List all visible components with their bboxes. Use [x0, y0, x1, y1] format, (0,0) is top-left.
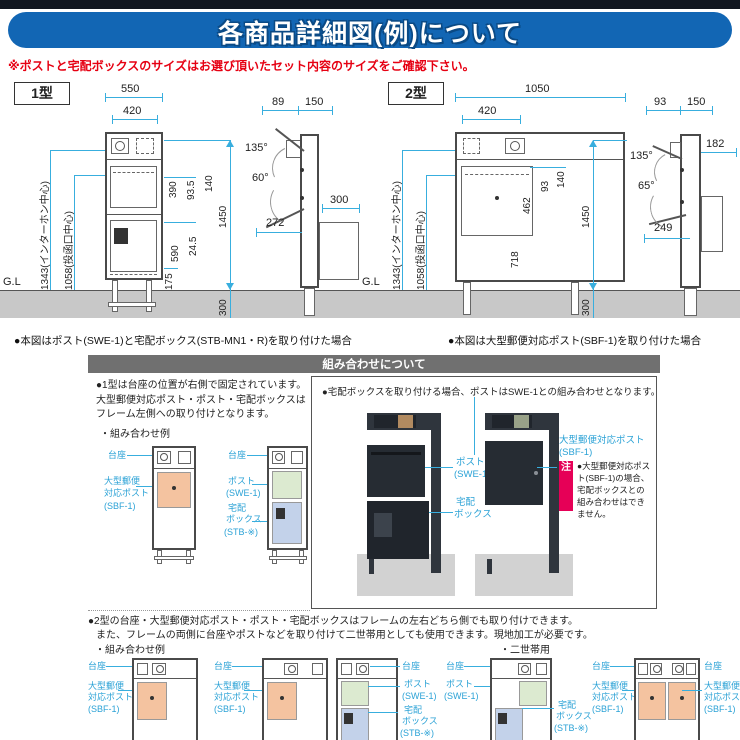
intercom-speaker-icon: [510, 141, 520, 151]
dim-tick: [262, 106, 263, 115]
label-leader: [370, 666, 400, 667]
photo2-pillar: [549, 413, 559, 573]
dim-leader: [402, 150, 455, 151]
takuhai-label-1: 宅配: [558, 700, 576, 711]
photo1-post-slot: [371, 452, 421, 455]
ohgata-label-2: 対応ポスト: [104, 488, 149, 499]
bottom-example-label: ・組み合わせ例: [95, 644, 165, 659]
dim-1450: 1450: [218, 206, 229, 228]
daiza-label: 台座: [402, 661, 420, 672]
dim-tick: [298, 106, 299, 115]
takuhai-label-1: 宅配: [404, 705, 422, 716]
dim-line: [644, 238, 690, 239]
page-title: 各商品詳細図(例)について: [218, 14, 522, 50]
dim-tick: [680, 106, 681, 115]
intercom-speaker-icon: [275, 453, 283, 461]
stand-foot: [154, 556, 194, 560]
dim-140: 140: [204, 175, 215, 192]
photo1-intercom-module: [398, 415, 413, 428]
takuhai-label-2: ボックス: [402, 716, 438, 727]
bottom-note-line2: また、フレームの両側に台座やポストなどを取り付けて二世帯用としても使用できます。…: [96, 629, 593, 644]
dim-line: [262, 110, 298, 111]
dim-leader: [426, 175, 455, 176]
type1-front-frame: [105, 132, 163, 280]
dim-249: 249: [654, 222, 672, 234]
photo2-intercom-module: [514, 415, 529, 428]
type2-badge: 2型: [388, 82, 444, 105]
dim-tick: [112, 115, 113, 124]
combo-note-text: ●大型郵便対応ポスト(SBF-1)の場合、宅配ボックスとの組み合わせはできません…: [577, 461, 653, 520]
dim-line: [322, 208, 359, 209]
lock-dot: [650, 696, 654, 700]
stb-label: (STB-※): [400, 728, 434, 739]
stand-leg: [146, 280, 152, 312]
swe-box: [341, 681, 369, 706]
dim-590: 590: [170, 245, 181, 262]
sbf-box: [267, 682, 297, 720]
frame-divider: [134, 678, 196, 679]
dim-leader: [164, 268, 178, 269]
lock-dot: [495, 196, 499, 200]
warning-text: ※ポストと宅配ボックスのサイズはお選び頂いたセット内容のサイズをご確認下さい。: [8, 57, 475, 74]
dim-tick: [646, 106, 647, 115]
swe-box: [272, 471, 302, 499]
ohgata-label-2: 対応ポスト: [704, 692, 740, 703]
dim-tick: [332, 106, 333, 115]
combo-right-note: ●宅配ボックスを取り付ける場合、ポストはSWE-1との組み合わせとなります。: [322, 384, 660, 398]
type1-badge: 1型: [14, 82, 70, 105]
dim-tick: [359, 204, 360, 213]
combo-diagram-a-frame: [152, 446, 196, 550]
daiza-label: 台座: [88, 661, 106, 672]
daiza-cell: [137, 663, 148, 675]
takuhai-label-1: 宅配: [228, 503, 246, 514]
dim-arrow: [589, 140, 597, 147]
bottom-dual-label: ・二世帯用: [500, 644, 550, 659]
type1-caption: ●本図はポスト(SWE-1)と宅配ボックス(STB-MN1・R)を取り付けた場合: [14, 333, 352, 348]
stand-leg: [571, 282, 579, 315]
dim-272: 272: [266, 217, 284, 229]
page: 各商品詳細図(例)について ※ポストと宅配ボックスのサイズはお選び頂いたセット内…: [0, 0, 740, 740]
dim-intercom-center: 1343(インターホン中心): [36, 181, 51, 290]
frame-divider: [264, 678, 326, 679]
dim-leader: [164, 140, 230, 141]
lock-dot: [280, 696, 284, 700]
angle-135: 135°: [245, 142, 268, 154]
side-leg: [684, 288, 697, 316]
dim-24-5: 24.5: [188, 237, 199, 256]
frame-divider: [636, 678, 698, 679]
label-leader: [522, 708, 554, 709]
takuhai-label-2: ボックス: [556, 711, 592, 722]
angle-65: 65°: [638, 180, 655, 192]
sbf-label: (SBF-1): [704, 704, 736, 715]
title-bar: 各商品詳細図(例)について: [8, 12, 732, 48]
gl-label-1: G.L: [3, 276, 21, 288]
swe-label: (SWE-1): [402, 691, 437, 702]
bottom-diagram4-frame: [490, 658, 552, 740]
dim-tick: [712, 106, 713, 115]
combo-header-bar: 組み合わせについて: [88, 355, 660, 373]
daiza-label: 台座: [592, 661, 610, 672]
type2-front-frame: [455, 132, 625, 282]
bottom-note-line1: ●2型の台座・大型郵便対応ポスト・ポスト・宅配ボックスはフレームの左右どちら側で…: [88, 615, 578, 630]
daiza-cell: [686, 663, 696, 675]
frame-dash: [110, 274, 157, 275]
dim-tick: [256, 228, 257, 237]
intercom-speaker-icon: [521, 665, 529, 673]
dim-1450-2: 1450: [581, 206, 592, 228]
keypad-icon: [344, 713, 353, 724]
dim-arrow: [226, 283, 234, 290]
sbf-box: [157, 472, 191, 508]
dim-arrow: [589, 283, 597, 290]
gl-label-2: G.L: [362, 276, 380, 288]
frame-divider: [107, 159, 161, 160]
ohgata-full-label: 大型郵便対応ポスト: [559, 435, 645, 447]
post-label: ポスト: [228, 476, 255, 487]
label-leader: [425, 467, 453, 468]
dim-175: 175: [164, 273, 175, 290]
takuhai-label-2: ボックス: [454, 509, 492, 521]
post-slot: [465, 174, 529, 175]
dim-arrow: [226, 140, 234, 147]
frame-divider: [457, 159, 623, 160]
dim-line: [105, 97, 163, 98]
dim-line: [680, 110, 712, 111]
dim-tick: [322, 204, 323, 213]
dim-tick: [625, 93, 626, 102]
frame-divider: [154, 468, 194, 469]
stb-label: (STB-※): [224, 527, 258, 538]
dim-150-side: 150: [687, 96, 705, 108]
bottom-diagram2-frame: [262, 658, 328, 740]
ohgata-label-2: 対応ポスト: [88, 692, 133, 703]
combo-example-label: ・組み合わせ例: [100, 428, 170, 443]
dim-300-depth: 300: [330, 194, 348, 206]
dim-line-300: [230, 290, 231, 318]
daiza-cell: [178, 451, 191, 464]
combo-header-title: 組み合わせについて: [322, 359, 425, 371]
dim-line: [455, 97, 625, 98]
dim-tick: [736, 148, 737, 157]
label-leader: [682, 690, 702, 691]
lock-dot: [150, 696, 154, 700]
dim-line-1450: [230, 140, 231, 290]
dim-tick: [520, 115, 521, 124]
swe-label: (SWE-1): [226, 488, 261, 499]
dim-line: [701, 152, 737, 153]
swe-label: (SWE-1): [444, 691, 479, 702]
lock-dot: [172, 486, 176, 490]
dim-550: 550: [121, 83, 139, 95]
sbf-label: (SBF-1): [88, 704, 120, 715]
dim-150: 150: [305, 96, 323, 108]
top-bar: [0, 0, 740, 9]
dim-390: 390: [168, 181, 179, 198]
frame-divider: [269, 468, 306, 469]
label-leader: [474, 397, 475, 455]
ground-line: [0, 290, 740, 291]
intercom-speaker-icon: [288, 665, 296, 673]
intercom-speaker-icon: [653, 665, 661, 673]
dim-tick: [644, 234, 645, 243]
combo-left-note: ●1型は台座の位置が右側で固定されています。大型郵便対応ポスト・ポスト・宅配ボッ…: [96, 379, 308, 423]
dim-leader: [50, 150, 105, 151]
daiza-cell: [638, 663, 648, 675]
swe-box: [519, 681, 547, 706]
intercom-speaker-icon: [115, 141, 125, 151]
daiza-label: 台座: [446, 661, 464, 672]
dim-89: 89: [272, 96, 284, 108]
stand-leg: [463, 282, 471, 315]
dim-slot-center-2: 1058(投函口中心): [412, 211, 427, 290]
keypad-icon: [498, 713, 507, 724]
label-leader: [368, 712, 398, 713]
dim-718: 718: [510, 251, 521, 268]
lock-dot: [680, 696, 684, 700]
dim-line: [112, 119, 157, 120]
dim-93-5: 93.5: [186, 181, 197, 200]
stand-leg: [112, 280, 118, 312]
dim-leader: [164, 222, 196, 223]
daiza-label: 台座: [108, 450, 126, 461]
dim-tick: [462, 115, 463, 124]
angle-135-2: 135°: [630, 150, 653, 162]
dim-1050: 1050: [525, 83, 549, 95]
frame-divider: [107, 214, 161, 215]
dim-line: [646, 110, 680, 111]
frame-divider: [492, 678, 550, 679]
dim-intercom-center-2: 1343(インターホン中心): [388, 181, 403, 290]
keypad-icon: [276, 508, 285, 519]
dim-140-2: 140: [556, 171, 567, 188]
label-leader: [429, 512, 453, 513]
dim-line: [256, 232, 302, 233]
dim-420: 420: [123, 105, 141, 117]
photo1-keypad: [374, 513, 392, 537]
dim-leader: [530, 167, 566, 168]
dim-line-1450-2: [593, 140, 594, 290]
dim-93-side: 93: [654, 96, 666, 108]
sbf-label: (SBF-1): [559, 447, 592, 459]
stand-foot: [269, 556, 307, 560]
combo-dotted-divider: [88, 610, 310, 611]
daiza-cell: [341, 663, 352, 675]
dim-leader: [164, 177, 196, 178]
sbf-box: [668, 682, 696, 720]
daiza-label: 台座: [214, 661, 232, 672]
ohgata-label-2: 対応ポスト: [592, 692, 637, 703]
post-label: ポスト: [404, 679, 431, 690]
dim-slot-center: 1058(投函口中心): [60, 211, 75, 290]
note-badge-bar: 注: [559, 461, 573, 511]
daiza-cell: [312, 663, 323, 675]
side-delivery-box: [319, 222, 359, 280]
ohgata-label-2: 対応ポスト: [214, 692, 259, 703]
intercom-speaker-icon: [160, 453, 168, 461]
dim-182: 182: [706, 138, 724, 150]
intercom-speaker-icon: [675, 665, 683, 673]
dim-line-300-2: [593, 290, 594, 318]
label-leader: [537, 467, 557, 468]
dim-tick: [162, 93, 163, 102]
post-label: ポスト: [446, 679, 473, 690]
daiza-cell: [536, 663, 547, 675]
ohgata-label-1: 大型郵便: [704, 681, 740, 692]
dim-93-2: 93: [540, 181, 551, 192]
sbf-box: [638, 682, 666, 720]
post-label: ポスト: [456, 457, 485, 469]
dim-line: [298, 110, 332, 111]
frame-divider: [338, 678, 396, 679]
type2-caption: ●本図は大型郵便対応ポスト(SBF-1)を取り付けた場合: [448, 333, 701, 348]
takuhai-label-2: ボックス: [226, 514, 262, 525]
sbf-label: (SBF-1): [104, 501, 136, 512]
daiza-cell: [291, 451, 303, 464]
bottom-diagram1-frame: [132, 658, 198, 740]
dim-tick: [455, 93, 456, 102]
dim-leader: [74, 175, 105, 176]
bottom-diagram5-frame: [634, 658, 700, 740]
ohgata-label-1: 大型郵便: [104, 476, 140, 487]
stb-label: (STB-※): [554, 723, 588, 734]
photo2-lock-dot: [534, 471, 538, 475]
keypad-icon: [114, 228, 128, 244]
angle-60: 60°: [252, 172, 269, 184]
dim-420-2: 420: [478, 105, 496, 117]
takuhai-label-1: 宅配: [456, 497, 475, 509]
post-slot: [113, 172, 154, 173]
note-badge-text: 注: [559, 461, 573, 475]
side-leg: [304, 288, 315, 316]
daiza-label: 台座: [704, 661, 722, 672]
sbf-box: [137, 682, 167, 720]
intercom-speaker-icon: [359, 665, 367, 673]
intercom-speaker-icon: [156, 665, 164, 673]
daiza-slot: [136, 138, 154, 154]
sbf-label: (SBF-1): [592, 704, 624, 715]
dim-tick: [105, 93, 106, 102]
dim-300-below: 300: [218, 299, 229, 316]
dim-leader: [593, 140, 627, 141]
photo1-pillar: [431, 413, 441, 573]
photo2-leg: [487, 559, 492, 574]
daiza-label: 台座: [228, 450, 246, 461]
sbf-label: (SBF-1): [214, 704, 246, 715]
label-leader: [368, 686, 400, 687]
combo-diagram-b-frame: [267, 446, 308, 550]
dim-462: 462: [522, 197, 533, 214]
daiza-slot: [463, 138, 480, 154]
dim-line: [462, 119, 520, 120]
combo-right-box: ●宅配ボックスを取り付ける場合、ポストはSWE-1との組み合わせとなります。 ポ…: [311, 376, 657, 609]
dim-tick: [157, 115, 158, 124]
dim-300-below-2: 300: [581, 299, 592, 316]
bottom-diagram3-frame: [336, 658, 398, 740]
stand-foot: [108, 302, 156, 307]
side-panel: [701, 196, 723, 252]
photo1-leg: [369, 559, 374, 574]
